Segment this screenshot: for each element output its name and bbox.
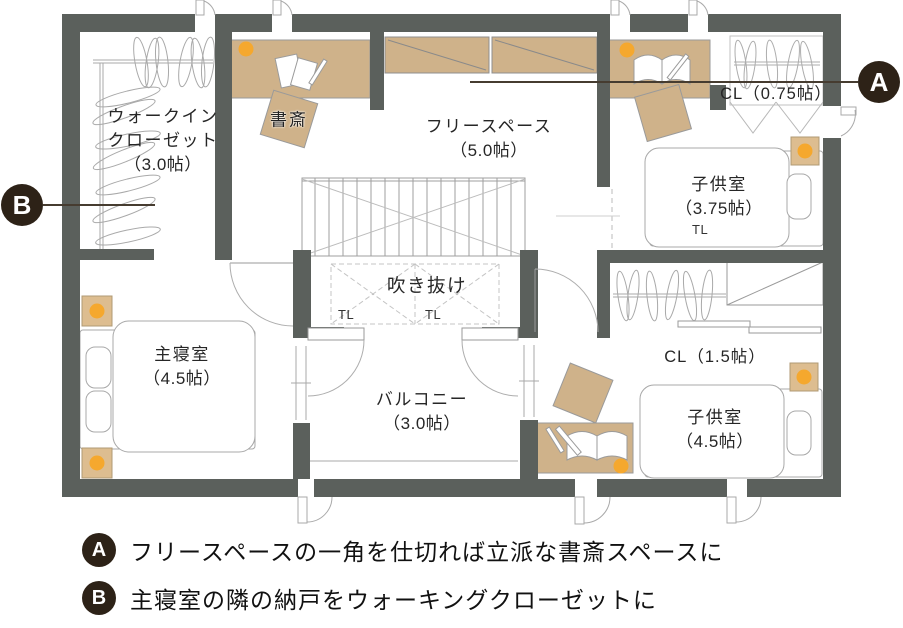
balcony-door: [308, 328, 364, 396]
wall-balcony-west-low: [293, 423, 310, 479]
downlight-dot: [239, 42, 254, 57]
wall-outer-left: [62, 14, 80, 497]
free-space-shelves: [385, 37, 597, 73]
kids-lower-nightstand: [790, 363, 818, 391]
kids-upper-desk: [608, 40, 710, 98]
kids-lower-door: [535, 269, 598, 332]
closet-large-label: CL（1.5帖）: [664, 343, 766, 367]
atrium-tl-right: TL: [425, 307, 441, 322]
balcony-door: [462, 328, 518, 396]
kids-upper-tl-label: TL: [692, 222, 708, 237]
study-desk: [228, 40, 370, 98]
casement-window: [195, 0, 215, 32]
kids-lower-label: 子供室 （4.5帖）: [676, 406, 754, 454]
legend-b-text: 主寝室の隣の納戸をウォーキングクローゼットに: [130, 581, 657, 615]
marker-b-badge: B: [1, 184, 43, 226]
casement-window: [823, 106, 856, 138]
legend-b-badge: B: [82, 581, 116, 615]
balcony-label: バルコニー （3.0帖）: [376, 388, 468, 436]
wic-label: ウォークイン クローゼット （3.0帖）: [108, 105, 219, 177]
closet-large: [613, 262, 823, 333]
closet-small-label: CL（0.75帖）: [720, 80, 832, 104]
master-bedroom-door: [230, 263, 293, 326]
casement-window: [272, 0, 292, 32]
pillow: [86, 347, 111, 388]
wall-balcony-east-low: [520, 420, 538, 479]
wall-outer-top: [62, 14, 841, 32]
downlight-dot: [620, 43, 635, 58]
master-bedroom-label: 主寝室 （4.5帖）: [143, 343, 221, 391]
kids-lower-chair: [553, 363, 613, 423]
pillow: [787, 174, 811, 219]
wall-mid-horizontal: [597, 250, 823, 263]
floor-plan-page: ウォークイン クローゼット （3.0帖） 書斎 フリースペース （5.0帖） C…: [0, 0, 903, 628]
pillow: [787, 411, 811, 455]
free-space-label: フリースペース （5.0帖）: [426, 115, 553, 163]
casement-window: [688, 0, 708, 32]
casement-window: [610, 0, 630, 32]
wall-stair-west: [293, 250, 311, 338]
downlight-dot: [614, 459, 629, 474]
atrium-label: 吹き抜け: [387, 274, 467, 298]
wall-outer-bottom: [62, 479, 841, 497]
wall-kids-upper-west: [597, 32, 610, 187]
stairs: [302, 178, 525, 256]
legend-row-b: B 主寝室の隣の納戸をウォーキングクローゼットに: [82, 581, 657, 615]
open-boundary-dashed: [556, 189, 620, 249]
legend-a-text: フリースペースの一角を仕切れば立派な書斎スペースに: [130, 533, 723, 567]
sliding-door-icon: [678, 321, 750, 327]
marker-a-badge: A: [858, 61, 900, 103]
open-book-icon: [634, 55, 662, 84]
kids-upper-label: 子供室 （3.75帖）: [675, 173, 763, 221]
wall-wic-south: [80, 249, 154, 260]
wic-hangers-top: [131, 36, 217, 88]
wic-hanger-rod-top: [93, 60, 213, 63]
kids-lower-desk: [537, 423, 633, 474]
kids-upper-nightstand: [791, 137, 819, 165]
legend-a-badge: A: [82, 533, 116, 567]
sliding-door-icon: [749, 327, 821, 333]
study-label: 書斎: [270, 106, 308, 131]
wall-study-partition: [370, 32, 384, 110]
pillow: [86, 391, 111, 432]
legend-row-a: A フリースペースの一角を仕切れば立派な書斎スペースに: [82, 533, 723, 567]
atrium-tl-left: TL: [338, 307, 354, 322]
wall-closet-large-west: [597, 263, 610, 338]
bifold-door-icon: [730, 102, 823, 133]
